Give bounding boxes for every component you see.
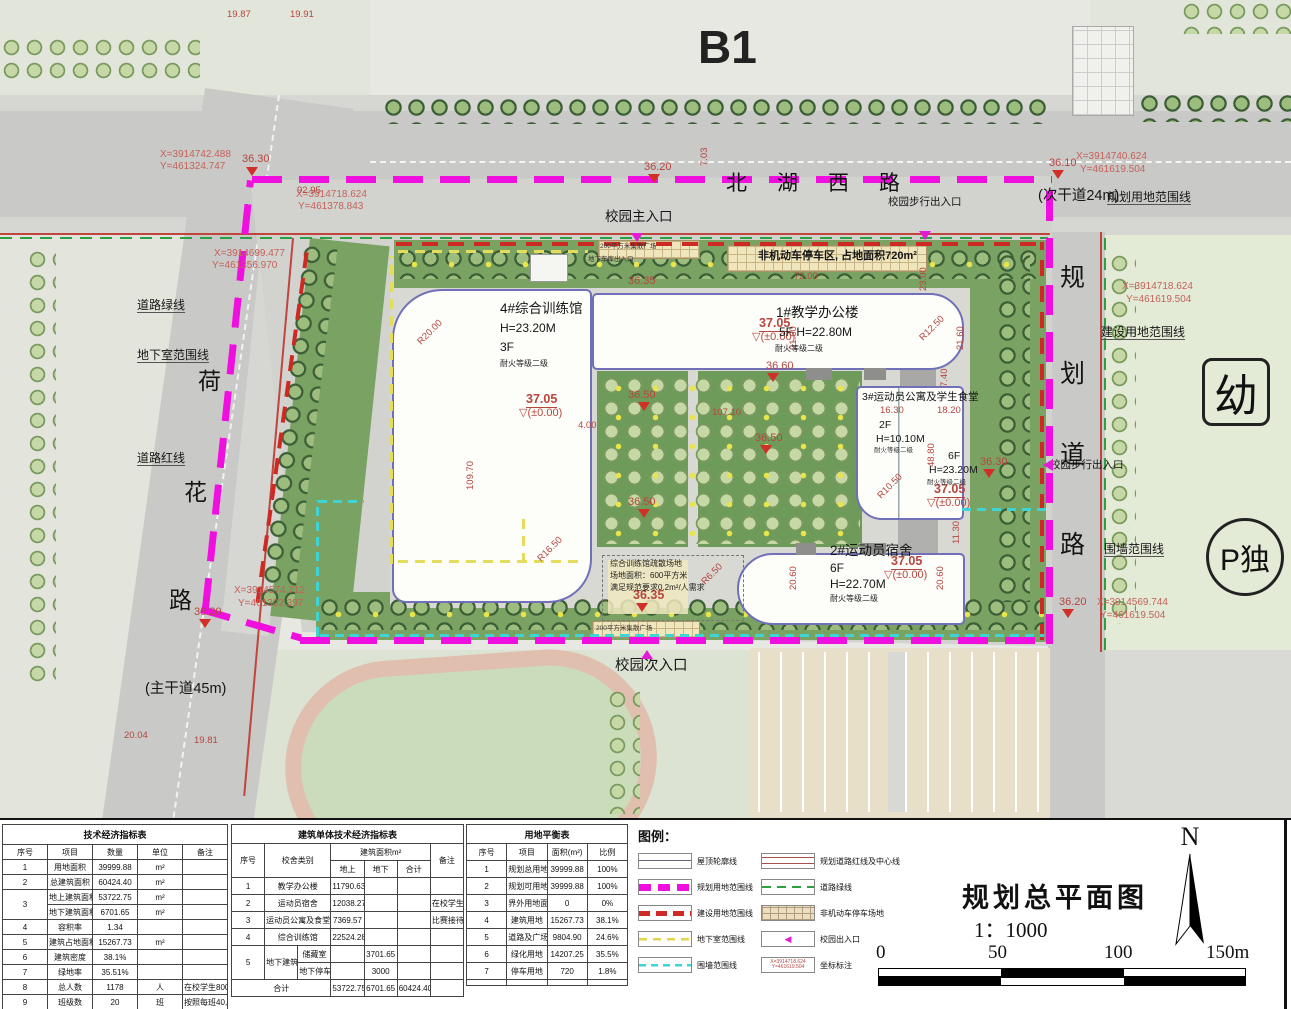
cell: 规划可用地面积	[507, 878, 547, 895]
cell: 1178	[93, 980, 138, 995]
wall-boundary	[316, 500, 319, 636]
cell: 100%	[587, 861, 627, 878]
plan-annotation: ▽(±0.00)	[884, 570, 927, 581]
plan-annotation: Y=461619.504	[1126, 295, 1191, 305]
basement-boundary	[398, 250, 588, 253]
cell: 储藏室	[298, 946, 331, 963]
construction-boundary-top	[396, 242, 1044, 246]
cell: 道路及广场用地	[507, 929, 547, 946]
plan-annotation: 21.60	[956, 326, 966, 350]
cell: 11790.63	[331, 878, 364, 895]
road-redline	[0, 233, 1050, 235]
plan-annotation: 23.00	[919, 267, 929, 291]
cell: 用地面积	[48, 860, 93, 875]
plan-annotation: 4.00	[578, 421, 597, 431]
cell: m²	[138, 890, 183, 905]
marker-triangle	[648, 174, 660, 183]
cell: 35.51%	[93, 965, 138, 980]
marker-triangle	[1043, 459, 1053, 471]
cell: 12038.27	[331, 895, 364, 912]
road-green-swatch-icon	[761, 879, 815, 895]
basement-boundary	[522, 515, 525, 563]
plan-annotation: H=10.10M	[876, 434, 925, 445]
marker-triangle	[983, 469, 995, 478]
tree-column	[996, 252, 1030, 602]
plan-annotation: 地下车库出入口	[588, 257, 634, 264]
cell: 建筑密度	[48, 950, 93, 965]
garage-ramp	[530, 254, 568, 282]
cell	[138, 965, 183, 980]
wall-swatch-icon	[638, 957, 692, 973]
legend-title: 图例：	[638, 826, 884, 845]
plan-annotation: 36.60	[766, 361, 794, 372]
cell: 按照每班40人计	[183, 995, 228, 1009]
wall-boundary	[320, 634, 1044, 637]
parking-island-mark: P独	[1206, 518, 1284, 596]
plan-annotation: 36.50	[628, 497, 656, 508]
marker-triangle	[631, 233, 643, 242]
plan-annotation: 满足规范要求0.2m²/人需求	[610, 584, 705, 592]
basement-boundary	[390, 256, 393, 564]
plan-annotation: 36.20	[194, 607, 222, 618]
plan-annotation: 37.05	[526, 393, 557, 408]
coord-swatch-icon: X=3914718.624Y=461619.504	[761, 957, 815, 973]
plan-annotation: 路	[169, 589, 192, 612]
header-cell: 地下	[364, 861, 397, 878]
scale-tick: 0	[876, 942, 886, 964]
header-cell: 地上	[331, 861, 364, 878]
plan-annotation: 20.60	[789, 566, 799, 590]
east-road-surface	[1048, 232, 1105, 818]
north-letter: N	[1160, 822, 1220, 852]
building-econ-table: 建筑单体技术经济指标表序号校舍类别建筑面积m²备注地上地下合计1教学办公楼117…	[231, 824, 464, 997]
cell: 规划总用地面积	[507, 861, 547, 878]
cell	[183, 875, 228, 890]
cell: 60424.40	[397, 980, 430, 997]
marker-triangle	[760, 445, 772, 454]
label-road-greenline: 道路绿线	[137, 299, 185, 313]
cell: 绿地率	[48, 965, 93, 980]
header-cell: 备注	[430, 844, 463, 878]
cell: 5	[467, 929, 507, 946]
plan-annotation: 72.00	[794, 272, 818, 282]
plan-annotation: 综合训练馆疏散场地	[610, 560, 682, 568]
cell	[183, 920, 228, 935]
plan-annotation: 36.50	[755, 433, 783, 444]
header-cell: 面积(m²)	[547, 844, 587, 861]
cell: 1.34	[93, 920, 138, 935]
plan-annotation: 19.91	[290, 10, 314, 20]
cell: 6701.65	[93, 905, 138, 920]
plan-annotation: 36.50	[628, 390, 656, 401]
legend: 图例： 屋顶轮廓线规划用地范围线建设用地范围线地下室范围线围墙范围线 规划道路红…	[638, 826, 884, 973]
cell: 20	[93, 995, 138, 1009]
plan-annotation: 荷	[198, 370, 221, 393]
cell: 5	[3, 935, 48, 950]
plan-annotation: 路	[1060, 533, 1085, 558]
cell: 7	[3, 965, 48, 980]
coord-sample: Y=461619.504	[772, 965, 805, 971]
cell: 总建筑面积	[48, 875, 93, 890]
cell: 教学办公楼	[265, 878, 331, 895]
cell: 综合训练馆	[265, 929, 331, 946]
cell: 比赛接待228人	[430, 912, 463, 929]
header-cell: 单位	[138, 845, 183, 860]
plan-annotation: 36.20	[644, 162, 672, 173]
cell: 1	[3, 860, 48, 875]
plan-annotation: 36.30	[242, 154, 270, 165]
table-title: 用地平衡表	[467, 825, 628, 844]
plan-boundary-right	[1046, 176, 1053, 644]
cell: 班	[138, 995, 183, 1009]
legend-label: 道路绿线	[820, 882, 852, 893]
plan-annotation: 划	[1060, 362, 1085, 387]
land-balance-table: 用地平衡表序号项目面积(m²)比例1规划总用地面积39999.88100%2规划…	[466, 824, 628, 986]
cell	[507, 980, 547, 986]
entrance-swatch-icon: ◀	[761, 931, 815, 947]
scale-tick: 50	[988, 942, 1007, 964]
cell: 0	[547, 895, 587, 912]
cell: 停车用地	[507, 963, 547, 980]
drawing-sheet: B1 北湖西路 幼 P独 X=3914742.488Y=461324.747X=…	[0, 0, 1291, 1009]
cell: 53722.75	[331, 980, 364, 997]
stair-core	[864, 368, 886, 380]
header-cell: 备注	[183, 845, 228, 860]
plan-annotation: 200平方米集散广场	[596, 626, 652, 633]
plan-annotation: 7.40	[940, 369, 950, 388]
cell: 6	[3, 950, 48, 965]
cell: 0%	[587, 895, 627, 912]
cell: 运动员宿舍	[265, 895, 331, 912]
marker-triangle	[641, 650, 653, 659]
cell: 7369.57	[331, 912, 364, 929]
plan-annotation: 道	[1060, 443, 1085, 468]
label-bike-parking: 非机动车停车区, 占地面积720m²	[758, 251, 917, 262]
cell	[397, 929, 430, 946]
plan-annotation: 92.95	[297, 186, 321, 196]
legend-item: 规划用地范围线	[638, 879, 753, 895]
cell: 总人数	[48, 980, 93, 995]
label-road-redline: 道路红线	[137, 452, 185, 466]
label-basement-boundary: 地下室范围线	[137, 349, 209, 363]
tree-row	[1138, 92, 1291, 122]
cell: 14207.25	[547, 946, 587, 963]
marker-triangle	[636, 603, 648, 612]
marker-triangle	[246, 167, 258, 176]
cell: 2	[467, 878, 507, 895]
plan-annotation: X=3914718.624	[1122, 282, 1193, 292]
plan-annotation: 36.10	[1049, 158, 1077, 169]
cell: 2	[3, 875, 48, 890]
cell: 53722.75	[93, 890, 138, 905]
cell: 720	[547, 963, 587, 980]
legend-label: 围墙范围线	[697, 960, 737, 971]
cell: 地上建筑面积	[48, 890, 93, 905]
cell: 6	[467, 946, 507, 963]
cell: 3	[3, 890, 48, 920]
roof-swatch-icon	[638, 853, 692, 869]
plan-annotation: 6F	[830, 562, 844, 574]
title-panel: 技术经济指标表序号项目数量单位备注1用地面积39999.88m²2总建筑面积60…	[0, 818, 1291, 1009]
basement-swatch-icon	[638, 931, 692, 947]
cell: 6701.65	[364, 980, 397, 997]
cell: 3	[467, 895, 507, 912]
tree-column	[1108, 252, 1136, 624]
cell	[430, 929, 463, 946]
cell	[467, 980, 507, 986]
marker-triangle	[919, 231, 931, 240]
cell: m²	[138, 875, 183, 890]
cell: 2	[232, 895, 265, 912]
header-cell: 项目	[507, 844, 547, 861]
plan-annotation: 19.87	[227, 10, 251, 20]
plan-annotation: 36.30	[980, 457, 1008, 468]
plan-annotation: 3F	[500, 341, 514, 353]
stair-core	[806, 368, 832, 380]
cell: 100%	[587, 878, 627, 895]
cell: 1	[232, 878, 265, 895]
cell: 15267.73	[93, 935, 138, 950]
legend-item: 建设用地范围线	[638, 905, 753, 921]
cell: 3000	[364, 963, 397, 980]
plan-annotation: 11.30	[952, 521, 962, 544]
road-red-swatch-icon	[761, 853, 815, 869]
wall-boundary	[962, 508, 1046, 511]
plan-annotation: 200平方米集散广场	[600, 244, 656, 251]
plan-annotation: X=3914742.488	[160, 150, 231, 160]
header-cell: 序号	[3, 845, 48, 860]
plan-annotation: 耐火等级二级	[830, 595, 878, 603]
cell	[138, 920, 183, 935]
parking-swatch-icon	[761, 905, 815, 921]
cell: 运动员公寓及食堂	[265, 912, 331, 929]
cell: 地下停车	[298, 963, 331, 980]
plan-annotation: 场地面积：600平方米	[610, 572, 687, 580]
plan-annotation: 36.20	[1059, 597, 1087, 608]
plan-annotation: ▽(±0.00)	[519, 408, 562, 419]
cell	[183, 935, 228, 950]
plan-annotation: 19.81	[194, 736, 218, 746]
cell	[138, 950, 183, 965]
cell: 在校学生800人	[430, 895, 463, 912]
plan-annotation: 规	[1060, 266, 1085, 291]
tree-row	[382, 96, 1050, 124]
legend-label: 坐标标注	[820, 960, 852, 971]
cell: 3701.65	[364, 946, 397, 963]
cell: 35.5%	[587, 946, 627, 963]
legend-label: 非机动车停车场地	[820, 908, 884, 919]
legend-item: 地下室范围线	[638, 931, 753, 947]
cell	[331, 946, 364, 963]
marker-triangle	[1052, 170, 1064, 179]
cell: 38.1%	[93, 950, 138, 965]
table-title: 技术经济指标表	[3, 825, 228, 845]
parking-aisle	[888, 652, 905, 812]
cell: 22524.28	[331, 929, 364, 946]
block-label: B1	[698, 20, 757, 74]
cell	[364, 878, 397, 895]
cell	[587, 980, 627, 986]
cell: 地下建筑面积	[48, 905, 93, 920]
wall-boundary	[318, 500, 364, 503]
header-cell: 校舍类别	[265, 844, 331, 878]
plan-annotation: X=3914574.712	[234, 586, 305, 596]
plan-bound-swatch-icon	[638, 879, 692, 895]
legend-item: 规划道路红线及中心线	[761, 853, 900, 869]
header-cell: 序号	[467, 844, 507, 861]
scale-bar-row	[878, 977, 1246, 986]
scale-tick: 150m	[1206, 942, 1249, 964]
cell	[183, 905, 228, 920]
tree-column	[606, 688, 640, 814]
building-label: 4#综合训练馆	[500, 302, 583, 316]
cell: 39999.88	[547, 878, 587, 895]
cell	[364, 912, 397, 929]
cell: 24.6%	[587, 929, 627, 946]
cell: 容积率	[48, 920, 93, 935]
legend-label: 规划道路红线及中心线	[820, 856, 900, 867]
plan-annotation: 107.10	[712, 408, 741, 418]
cell	[397, 946, 430, 963]
plan-annotation: H=23.20M	[500, 322, 556, 334]
scale-bar: 0 50 100 150m	[876, 942, 1248, 998]
cell	[430, 963, 463, 980]
plan-annotation: Y=461356.970	[212, 261, 277, 271]
plan-annotation: X=3914740.624	[1076, 152, 1147, 162]
legend-item: 非机动车停车场地	[761, 905, 900, 921]
cell	[397, 912, 430, 929]
cell	[183, 965, 228, 980]
table-title: 建筑单体技术经济指标表	[232, 825, 464, 844]
label-pedestrian-entrance: 校园步行出入口	[888, 197, 962, 208]
label-wall-boundary: 围墙范围线	[1104, 543, 1164, 557]
plan-boundary-bottom	[300, 637, 1052, 644]
header-cell: 序号	[232, 844, 265, 878]
label-road-note: (次干道24m)	[1038, 189, 1119, 204]
cell	[183, 890, 228, 905]
stair-core	[796, 543, 816, 555]
tech-econ-table: 技术经济指标表序号项目数量单位备注1用地面积39999.88m²2总建筑面积60…	[2, 824, 228, 1009]
parking-stalls	[758, 652, 888, 812]
legend-label: 规划用地范围线	[697, 882, 753, 893]
cell: 建筑占地面积	[48, 935, 93, 950]
cell: 在校学生800人，比赛228人	[183, 980, 228, 995]
cell	[397, 895, 430, 912]
header-cell: 项目	[48, 845, 93, 860]
plan-annotation: 16.30	[880, 406, 904, 416]
north-road-laneline	[370, 161, 1291, 163]
cell: 8	[3, 980, 48, 995]
plan-annotation: 耐火等级二级	[500, 360, 548, 368]
legend-col-left: 屋顶轮廓线规划用地范围线建设用地范围线地下室范围线围墙范围线	[638, 853, 753, 973]
cell: 人	[138, 980, 183, 995]
road-greenline	[1104, 232, 1106, 650]
cell: 建筑用地	[507, 912, 547, 929]
cell	[397, 963, 430, 980]
plan-annotation: 18.20	[937, 406, 961, 416]
header-cell: 数量	[93, 845, 138, 860]
building-label: 1#教学办公楼	[776, 306, 859, 320]
compass-needle-icon	[1168, 852, 1212, 948]
basement-boundary	[398, 560, 584, 563]
site-plan: B1 北湖西路 幼 P独 X=3914742.488Y=461324.747X=…	[0, 0, 1291, 818]
cell: 4	[232, 929, 265, 946]
plan-annotation: 36.35	[628, 276, 656, 287]
plan-annotation: H=23.20M	[929, 465, 978, 476]
plan-annotation: 2F	[879, 420, 891, 431]
building-label: 2#运动员宿舍	[830, 544, 913, 558]
marker-triangle	[767, 373, 779, 382]
label-construction-boundary: 建设用地范围线	[1101, 326, 1185, 340]
plan-annotation: 20.60	[936, 566, 946, 590]
shrub-dots	[396, 250, 1036, 280]
plan-annotation: 7.03	[700, 148, 710, 167]
cell	[364, 929, 397, 946]
cell	[397, 878, 430, 895]
cell: 15267.73	[547, 912, 587, 929]
plan-annotation: H=22.70M	[830, 578, 886, 590]
legend-label: 屋顶轮廓线	[697, 856, 737, 867]
cell: 9804.90	[547, 929, 587, 946]
tree-column	[26, 248, 56, 688]
marker-triangle	[1062, 609, 1074, 618]
cell: m²	[138, 860, 183, 875]
sheet-border	[1284, 820, 1287, 1009]
cell: 5	[232, 946, 265, 980]
cell: 9	[3, 995, 48, 1009]
cell: 39999.88	[547, 861, 587, 878]
plan-annotation: ▽(±0.00)	[927, 498, 970, 509]
header-cell: 建筑面积m²	[331, 844, 430, 861]
plan-annotation: Y=461378.843	[298, 202, 363, 212]
plan-annotation: 耐火等级二级	[775, 345, 823, 353]
scale-bar-row	[878, 968, 1246, 977]
cell: 60424.40	[93, 875, 138, 890]
tree-cluster	[0, 36, 200, 82]
plan-annotation: Y=461302.397	[238, 599, 303, 609]
legend-label: 建设用地范围线	[697, 908, 753, 919]
header-cell: 合计	[397, 861, 430, 878]
plan-annotation: Y=461619.504	[1080, 165, 1145, 175]
label-road-note: (主干道45m)	[145, 682, 226, 697]
parking-stalls	[905, 652, 1045, 812]
tree-cluster	[1180, 0, 1291, 34]
plan-annotation: Y=461324.747	[160, 162, 225, 172]
plan-annotation: 花	[184, 481, 207, 504]
legend-item: 道路绿线	[761, 879, 900, 895]
header-cell: 比例	[587, 844, 627, 861]
cell: 绿化用地	[507, 946, 547, 963]
plan-annotation: X=3914699.477	[214, 249, 285, 259]
kindergarten-mark: 幼	[1202, 358, 1270, 426]
label-plan-boundary: 规划用地范围线	[1107, 191, 1191, 205]
label-secondary-entrance: 校园次入口	[615, 659, 688, 674]
cell: 地下建筑	[265, 946, 298, 980]
marker-triangle	[199, 619, 211, 628]
cell	[430, 980, 463, 997]
scale-tick: 100	[1104, 942, 1133, 964]
plan-annotation: Y=461619.504	[1100, 611, 1165, 621]
north-road-name: 北湖西路	[726, 167, 930, 197]
cell	[183, 950, 228, 965]
legend-item: 围墙范围线	[638, 957, 753, 973]
cell: 合计	[232, 980, 331, 997]
build-bound-swatch-icon	[638, 905, 692, 921]
label-main-entrance: 校园主入口	[605, 210, 673, 224]
cell: 38.1%	[587, 912, 627, 929]
legend-item: 屋顶轮廓线	[638, 853, 753, 869]
plan-annotation: X=3914569.744	[1097, 598, 1168, 608]
